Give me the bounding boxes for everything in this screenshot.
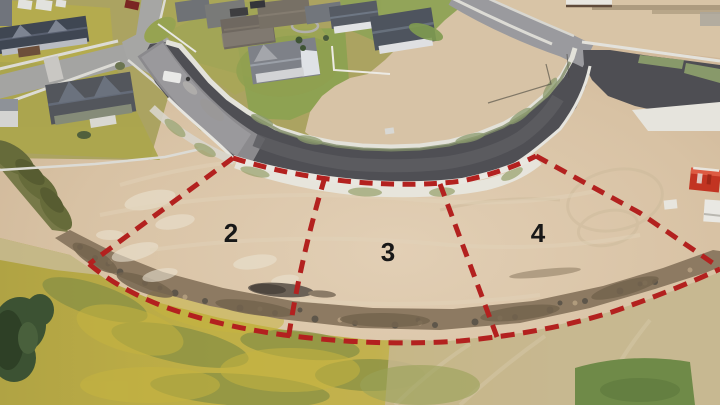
svg-text:2: 2	[224, 218, 238, 248]
svg-text:4: 4	[531, 218, 546, 248]
svg-text:3: 3	[381, 237, 395, 267]
